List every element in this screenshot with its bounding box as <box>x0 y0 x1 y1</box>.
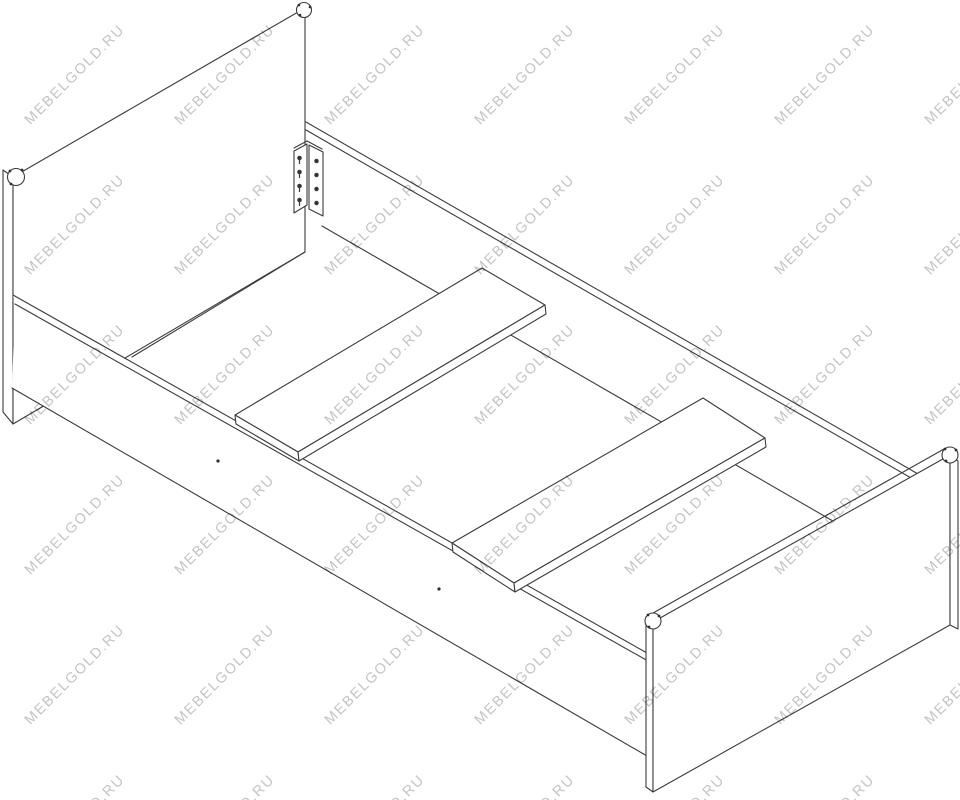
bracket-right-plate <box>309 145 323 216</box>
bed-frame-line-drawing <box>0 0 960 800</box>
slat-2 <box>452 398 766 592</box>
rail-right-top-back-edge <box>306 122 925 478</box>
headboard-left-edge <box>3 170 13 424</box>
product-drawing-canvas: MEBELGOLD.RUMEBELGOLD.RUMEBELGOLD.RUMEBE… <box>0 0 960 800</box>
slat-2-top-face <box>452 398 765 583</box>
slat-1-top-face <box>235 268 545 452</box>
rail-right-top-front-edge <box>306 130 925 486</box>
bracket-left-plate <box>294 144 307 213</box>
footboard-left-edge <box>646 617 653 792</box>
footboard-front-face <box>653 455 950 792</box>
footboard-right-edge <box>950 455 958 629</box>
slat-1 <box>235 268 546 461</box>
corner-bracket <box>294 141 323 216</box>
